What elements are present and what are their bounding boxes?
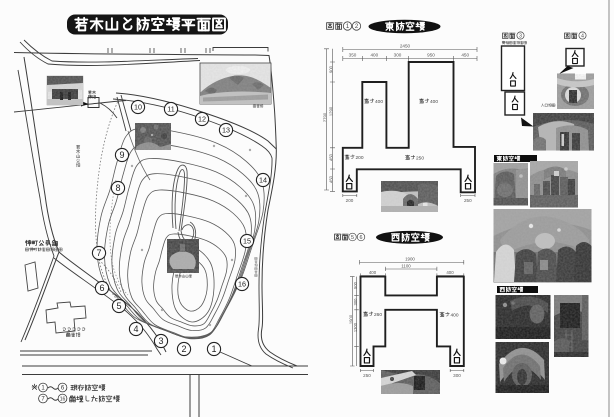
svg-text:7: 7 [96, 248, 101, 258]
svg-text:14: 14 [259, 176, 267, 185]
svg-text:3: 3 [158, 336, 163, 346]
svg-text:350: 350 [349, 53, 357, 58]
svg-text:450: 450 [329, 175, 334, 183]
svg-text:10: 10 [134, 103, 142, 112]
svg-text:5: 5 [351, 235, 354, 241]
svg-text:400: 400 [446, 270, 454, 275]
svg-text:1300: 1300 [353, 322, 358, 332]
svg-text:1900: 1900 [405, 257, 415, 262]
svg-text:9: 9 [119, 150, 124, 160]
svg-text:16: 16 [238, 280, 246, 289]
svg-text:5: 5 [116, 301, 121, 311]
svg-text:400: 400 [451, 313, 459, 319]
svg-text:11: 11 [167, 105, 174, 114]
svg-text:13: 13 [222, 126, 230, 135]
svg-text:2450: 2450 [400, 44, 411, 49]
svg-text:500: 500 [353, 281, 358, 289]
svg-text:1100: 1100 [401, 263, 411, 268]
svg-text:6: 6 [360, 235, 363, 241]
svg-text:2790: 2790 [323, 112, 328, 122]
svg-text:1: 1 [211, 344, 216, 354]
svg-text:450: 450 [461, 53, 469, 58]
svg-text:900: 900 [329, 65, 334, 73]
svg-text:450: 450 [329, 153, 334, 161]
svg-text:400: 400 [375, 99, 383, 105]
svg-text:950: 950 [427, 53, 435, 58]
svg-text:1900: 1900 [349, 314, 354, 324]
svg-text:300: 300 [394, 53, 402, 58]
svg-text:300: 300 [453, 373, 461, 378]
svg-text:250: 250 [363, 373, 371, 378]
svg-text:260: 260 [374, 312, 382, 318]
svg-text:400: 400 [430, 99, 438, 105]
svg-text:6: 6 [99, 283, 104, 293]
svg-text:2: 2 [181, 344, 186, 354]
svg-text:16: 16 [60, 396, 66, 402]
svg-text:12: 12 [198, 115, 206, 124]
svg-text:1290: 1290 [329, 106, 334, 116]
svg-text:15: 15 [243, 237, 251, 246]
svg-text:250: 250 [464, 198, 472, 203]
svg-text:8: 8 [115, 183, 120, 193]
svg-text:4: 4 [581, 33, 584, 39]
svg-text:200: 200 [356, 155, 364, 161]
svg-text:200: 200 [346, 198, 354, 203]
svg-text:300: 300 [353, 298, 358, 306]
svg-text:4: 4 [133, 324, 138, 334]
svg-text:400: 400 [369, 270, 377, 275]
svg-text:400: 400 [370, 53, 378, 58]
svg-text:250: 250 [416, 156, 424, 162]
svg-text:3: 3 [519, 33, 522, 39]
